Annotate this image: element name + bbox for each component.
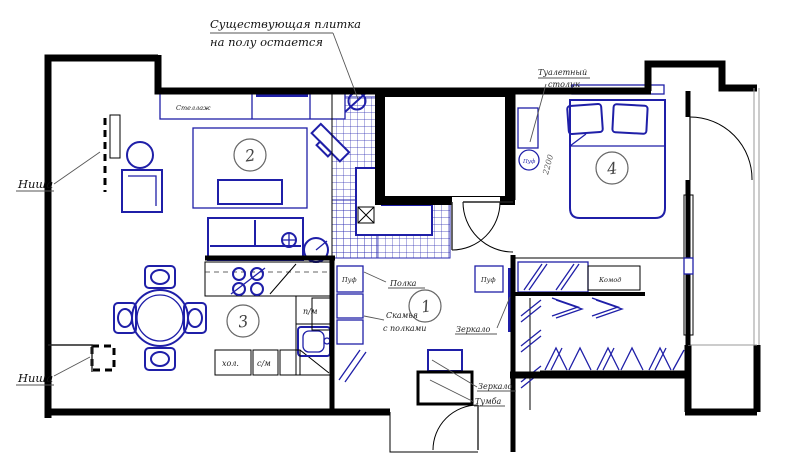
bathroom-door-arc (452, 202, 500, 250)
shelf-hall-label: Полка (389, 279, 417, 288)
bench-label-line1: Скамья (386, 311, 418, 320)
hall-hangers (339, 350, 366, 382)
dressing-table (518, 108, 538, 148)
pouf-hall-right-label: Пуф (480, 276, 496, 284)
dressing-table-label-line1: Туалетный (538, 68, 587, 77)
bedroom-door-arc (463, 202, 513, 252)
duct-shaft (280, 350, 300, 375)
balcony-door-arc (690, 117, 752, 180)
dishwasher-label: п/м (303, 307, 318, 316)
entry-door-arc (433, 405, 478, 450)
radiator (110, 115, 120, 158)
shelf-unit-label: Стеллаж (176, 104, 211, 112)
niche-top-label: Ниша (17, 177, 53, 191)
niche-bottom-edge (92, 346, 114, 370)
living-room (122, 90, 349, 262)
hall-bench-box (337, 320, 363, 344)
annotation-tile-line1: Существующая плитка (210, 17, 361, 31)
room-number-living: 2 (243, 145, 257, 165)
floor-plan-drawing: 1 2 3 4 Существующая плитка на полу оста… (0, 0, 800, 466)
kitchen-counter (205, 262, 332, 296)
dressing-table-label-line2: столик (548, 80, 580, 89)
mirror-entry-label: Зеркало (478, 382, 512, 391)
coffee-table (218, 180, 282, 204)
closet-shelf-items (552, 298, 622, 318)
room-number-kitchen: 3 (237, 311, 250, 331)
annotation-tile-line2: на полу остается (210, 35, 323, 49)
dimension-2200: 2200 (541, 154, 555, 177)
fridge-label: хол. (222, 359, 239, 368)
balcony-vent (684, 258, 693, 274)
room-number-hallway: 1 (420, 296, 433, 316)
niche-bottom-label: Ниша (17, 371, 53, 385)
dining-table (132, 290, 188, 346)
bed (567, 100, 665, 218)
bench-label-line2: с полками (383, 324, 426, 333)
hall-shelf-box (337, 294, 363, 318)
closet-hangers-bottom (545, 348, 684, 370)
texts: Существующая плитка на полу остается Ниш… (17, 17, 621, 406)
mirror-wardrobe-label: Зеркало (456, 325, 490, 334)
pouf-bedroom-label: Пуф (522, 158, 536, 165)
pouf-hall-left-label: Пуф (341, 276, 357, 284)
dining-chairs (114, 266, 206, 370)
pouf-round (127, 142, 153, 168)
washer-label: с/м (257, 359, 271, 368)
floor-plan-page: 1 2 3 4 Существующая плитка на полу оста… (0, 0, 800, 466)
dresser-label: Комод (598, 276, 621, 284)
cabinet-entry-label: Тумба (475, 397, 501, 406)
